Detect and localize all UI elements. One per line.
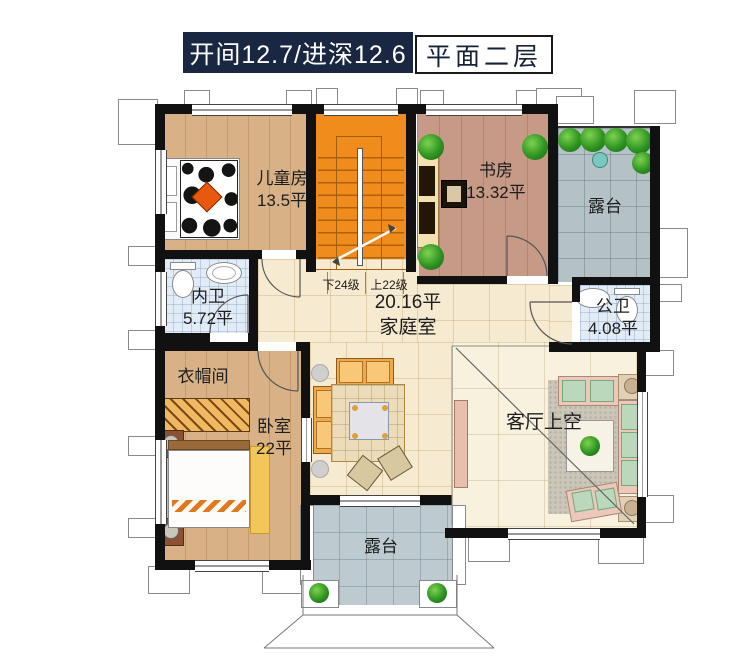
terrace-edge <box>558 126 650 128</box>
wall <box>155 333 210 342</box>
wall <box>572 277 660 285</box>
living-sofa-cushion <box>571 489 594 512</box>
wall <box>301 342 310 418</box>
room-name: 公卫 <box>578 296 648 318</box>
pillar-box <box>128 436 158 456</box>
room-name: 卧室 <box>246 416 302 438</box>
room-label-bedroom: 卧室 22平 <box>246 416 302 461</box>
living-sofa-cushion <box>562 380 586 402</box>
room-label-family: 20.16平 家庭室 <box>358 290 458 340</box>
wall <box>650 277 660 352</box>
floor-banner: 平面二层 <box>415 35 553 74</box>
wall <box>296 250 306 259</box>
plant-icon <box>558 128 582 152</box>
family-sofa-cushion <box>366 361 390 383</box>
room-label-cloak: 衣帽间 <box>166 366 240 388</box>
wall <box>406 104 416 272</box>
window <box>637 392 648 497</box>
window <box>426 104 522 116</box>
window <box>324 104 398 116</box>
room-area: 5.72平 <box>168 308 248 330</box>
family-room-floor <box>549 285 572 342</box>
toilet-tank <box>614 288 640 295</box>
room-label-terrace-bottom: 露台 <box>348 536 414 558</box>
room-name: 露台 <box>348 536 414 558</box>
room-name: 衣帽间 <box>166 366 240 388</box>
plant-icon <box>418 134 444 160</box>
room-area: 13.32平 <box>450 182 542 204</box>
window <box>508 528 600 540</box>
pillar-box <box>644 350 674 376</box>
floor-lamp <box>311 364 329 382</box>
window <box>192 104 292 116</box>
pillar-box <box>644 495 674 523</box>
room-label-children: 儿童房 13.5平 <box>240 168 324 213</box>
plant-icon <box>309 583 329 603</box>
room-name: 露台 <box>570 196 640 218</box>
living-sofa-cushion <box>594 487 617 510</box>
room-area: 13.5平 <box>240 190 324 212</box>
stair-bottom-edge <box>316 269 406 270</box>
plant-icon <box>522 134 548 160</box>
stair-label-up: 上22级 <box>368 278 410 294</box>
room-name: 客厅上空 <box>496 410 592 435</box>
wall <box>417 276 507 284</box>
tv-cabinet <box>454 400 468 488</box>
family-sofa-cushion <box>339 361 363 383</box>
floor-lamp <box>311 460 329 478</box>
wall <box>650 126 660 282</box>
room-area: 4.08平 <box>578 318 648 340</box>
wall <box>549 342 650 352</box>
window <box>155 150 167 214</box>
wall <box>445 528 508 538</box>
pillar-box <box>128 246 158 266</box>
wall <box>249 259 258 342</box>
terrace-table <box>592 152 608 168</box>
window <box>155 440 167 524</box>
sink-basin-inner <box>212 266 236 280</box>
room-label-living-void: 客厅上空 <box>496 410 592 435</box>
room-label-study: 书房 13.32平 <box>450 160 542 205</box>
wall <box>548 104 558 284</box>
study-desk-item <box>419 166 435 196</box>
plant-icon <box>626 128 652 154</box>
wall <box>637 352 646 392</box>
family-coffee-table <box>349 402 389 440</box>
pillar-box <box>148 566 190 594</box>
plant-icon <box>604 128 628 152</box>
wardrobe <box>162 398 250 432</box>
wall <box>155 250 262 259</box>
toilet-tank <box>170 262 196 270</box>
room-name: 内卫 <box>168 286 248 308</box>
wall <box>155 342 258 351</box>
pillar-box <box>468 536 510 562</box>
pillar-box <box>658 228 688 278</box>
room-label-public-bath: 公卫 4.08平 <box>578 296 648 341</box>
terrace-side-wall <box>452 505 466 585</box>
pillar-box <box>128 330 158 350</box>
wall <box>600 528 646 538</box>
room-name: 儿童房 <box>240 168 324 190</box>
window <box>155 272 167 326</box>
dimensions-banner: 开间12.7/进深12.6 <box>183 32 413 73</box>
room-name: 书房 <box>450 160 542 182</box>
pillar-box <box>556 96 594 124</box>
stair-rail <box>357 148 363 266</box>
bedroom-bed <box>168 450 250 528</box>
plant-icon <box>580 436 600 456</box>
living-sofa-cushion <box>590 380 614 402</box>
study-desk-item <box>419 202 435 234</box>
window <box>195 560 269 572</box>
pillar-box <box>118 99 158 145</box>
room-area: 22平 <box>246 438 302 460</box>
pillar-box <box>128 518 158 538</box>
floor-plan-page: 开间12.7/进深12.6 平面二层 <box>0 0 750 660</box>
bed-headboard <box>168 440 250 450</box>
room-label-inner-bath: 内卫 5.72平 <box>168 286 248 331</box>
plant-icon <box>427 583 447 603</box>
bedroom-door-opening <box>301 418 312 462</box>
bed-blanket-trim <box>172 500 246 512</box>
wall <box>301 462 310 570</box>
sliding-door <box>340 495 420 507</box>
room-label-terrace-top: 露台 <box>570 196 640 218</box>
pillar-box <box>598 536 644 564</box>
room-name: 家庭室 <box>358 315 458 340</box>
stair-label-down: 下24级 <box>320 278 362 294</box>
plant-icon <box>418 244 444 270</box>
pillar-box <box>634 90 676 124</box>
plant-icon <box>580 126 606 152</box>
